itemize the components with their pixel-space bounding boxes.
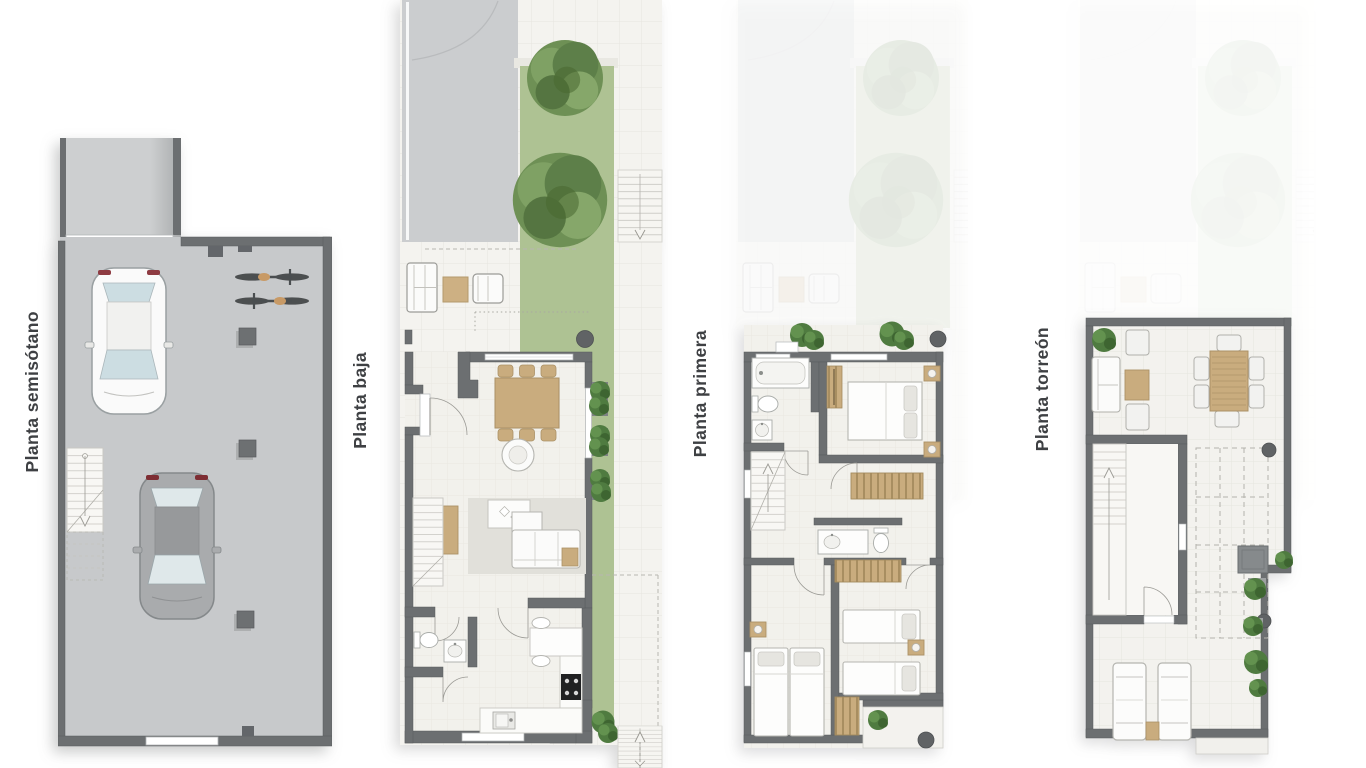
- dining-set: [495, 365, 559, 441]
- kitchen-window: [462, 733, 524, 741]
- floor-label-torreon: Planta torreón: [1032, 327, 1053, 451]
- single-bed: [754, 648, 788, 736]
- plan-torreon: [1078, 0, 1314, 768]
- first-floor-stairs: [751, 452, 785, 530]
- tree: [513, 153, 607, 247]
- tv-cabinet: [443, 506, 458, 554]
- plan-primera: [736, 0, 968, 768]
- kitchen-island: [530, 628, 582, 656]
- coffee-table: [1125, 370, 1149, 400]
- round-column: [918, 732, 934, 748]
- toilet: [758, 396, 778, 412]
- round-column: [577, 331, 594, 348]
- plan-baja: [400, 0, 664, 768]
- single-bed: [843, 610, 920, 643]
- planter-hedge: [589, 381, 611, 502]
- sun-lounger: [1158, 663, 1191, 740]
- driveway: [402, 0, 518, 242]
- single-bed: [843, 662, 920, 695]
- toilet: [420, 633, 438, 648]
- stool: [532, 656, 550, 667]
- cooktop: [561, 674, 581, 700]
- exterior-steps-top: [618, 170, 662, 242]
- bathroom-second: [818, 528, 889, 554]
- wardrobe: [835, 697, 859, 735]
- white-car: [85, 268, 173, 414]
- ground-stairs: [413, 498, 443, 586]
- single-bed: [790, 648, 824, 736]
- floor-plans-sheet: Planta semisótano: [0, 0, 1366, 768]
- hall-wardrobe: [835, 560, 901, 582]
- round-column: [1262, 443, 1276, 457]
- chaise: [512, 512, 542, 532]
- dining-table: [495, 378, 559, 428]
- outdoor-sofa: [1092, 357, 1120, 412]
- basement-door: [146, 737, 218, 745]
- floor-label-baja: Planta baja: [350, 352, 371, 449]
- rear-balcony: [863, 707, 943, 748]
- tree: [527, 40, 603, 116]
- entry-door: [420, 394, 430, 436]
- lounge-chair: [1126, 404, 1149, 430]
- dressing-wardrobe: [851, 473, 923, 499]
- stool: [532, 618, 550, 629]
- lower-roof: [1196, 738, 1268, 754]
- stair-enclosure: [1093, 444, 1186, 623]
- floor-label-primera: Planta primera: [690, 330, 711, 457]
- toilet: [874, 534, 889, 553]
- chimney: [1238, 546, 1268, 573]
- floor-label-semisotano: Planta semisótano: [22, 311, 43, 472]
- plan-semisotano: [58, 138, 332, 750]
- round-column: [930, 331, 946, 347]
- access-ramp: [60, 138, 181, 242]
- gray-car: [133, 473, 221, 619]
- sun-lounger: [1113, 663, 1146, 740]
- lounge-chair: [1126, 330, 1149, 355]
- side-table: [1146, 722, 1159, 740]
